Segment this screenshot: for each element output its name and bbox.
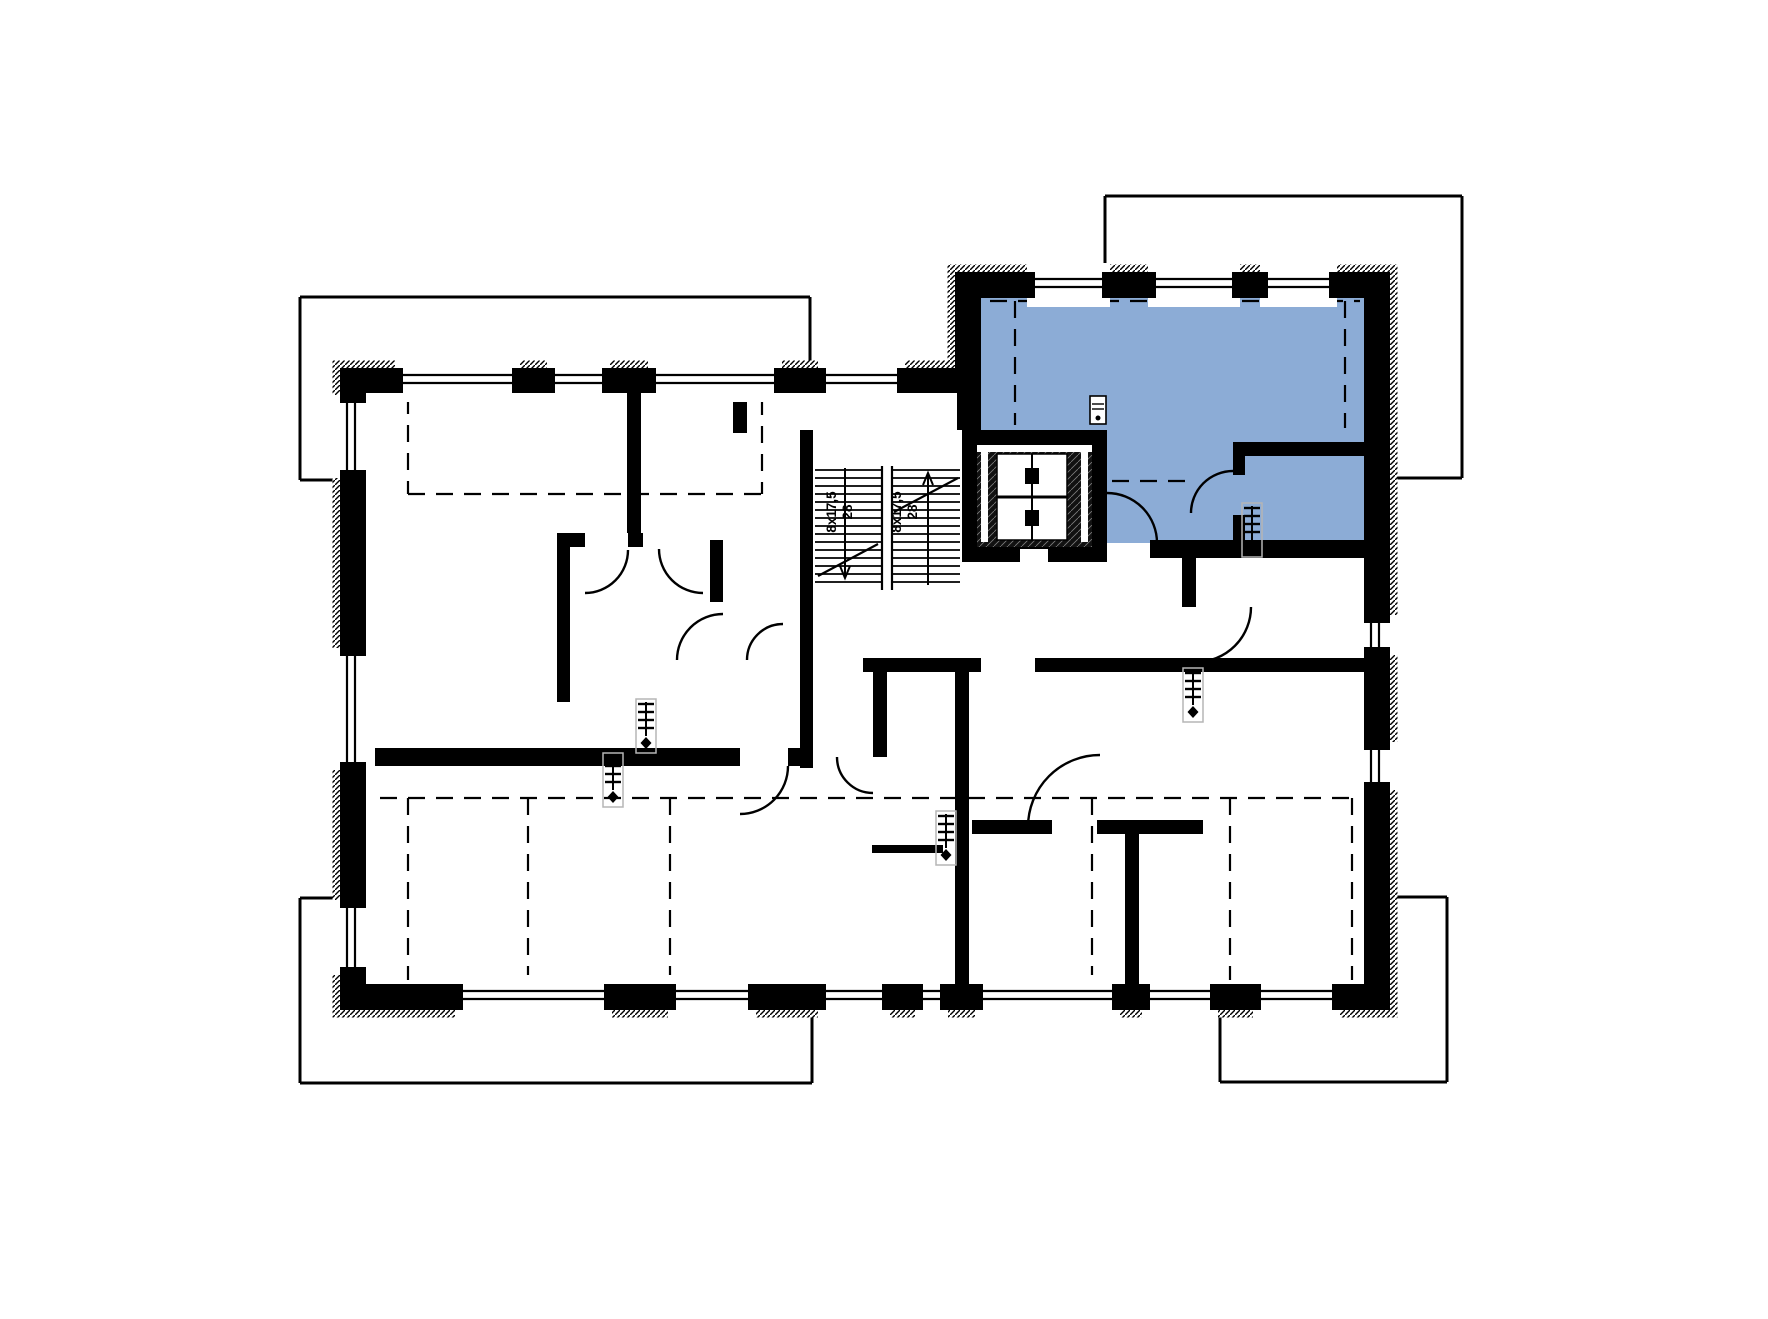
window-jamb bbox=[340, 648, 366, 656]
window-jamb bbox=[1232, 272, 1240, 298]
window bbox=[975, 975, 1120, 1019]
window-jamb bbox=[940, 984, 948, 1010]
window-jamb bbox=[1364, 782, 1390, 790]
window bbox=[1355, 615, 1399, 655]
window bbox=[455, 975, 612, 1019]
interior-wall bbox=[1233, 456, 1245, 475]
interior-wall bbox=[1182, 558, 1196, 607]
window-jamb bbox=[748, 984, 756, 1010]
window bbox=[1355, 742, 1399, 790]
window-jamb bbox=[340, 967, 366, 975]
interior-wall bbox=[1035, 658, 1364, 672]
interior-wall bbox=[873, 672, 887, 757]
window-jamb bbox=[818, 984, 826, 1010]
window-jamb bbox=[602, 368, 610, 393]
window bbox=[818, 975, 890, 1019]
window-jamb bbox=[547, 368, 555, 393]
elevator-door-opening bbox=[1020, 549, 1048, 563]
window bbox=[818, 359, 905, 402]
window bbox=[1027, 263, 1110, 307]
window bbox=[668, 975, 756, 1019]
window-jamb bbox=[1148, 272, 1156, 298]
window-jamb bbox=[340, 762, 366, 770]
window-jamb bbox=[1260, 272, 1268, 298]
window-jamb bbox=[774, 368, 782, 393]
interior-wall bbox=[557, 533, 585, 547]
window-jamb bbox=[668, 984, 676, 1010]
window-jamb bbox=[340, 470, 366, 478]
window-jamb bbox=[882, 984, 890, 1010]
interior-wall bbox=[627, 393, 641, 533]
interior-wall bbox=[863, 658, 981, 672]
window-jamb bbox=[1102, 272, 1110, 298]
stair-label-tread: 28 bbox=[905, 504, 920, 520]
floor-plan-page: 8x17,5288x17,528 bbox=[0, 0, 1768, 1319]
interior-wall bbox=[955, 672, 969, 984]
window-jamb bbox=[1364, 647, 1390, 655]
window-jamb bbox=[1253, 984, 1261, 1010]
interior-wall bbox=[1150, 540, 1364, 558]
window-jamb bbox=[818, 368, 826, 393]
window bbox=[331, 900, 375, 975]
window-jamb bbox=[1332, 984, 1340, 1010]
window bbox=[648, 359, 782, 402]
window bbox=[1142, 975, 1218, 1019]
window-jamb bbox=[395, 368, 403, 393]
window-jamb bbox=[1027, 272, 1035, 298]
electrical-panel-icon bbox=[1090, 396, 1106, 424]
window-jamb bbox=[455, 984, 463, 1010]
window bbox=[1253, 975, 1340, 1019]
stair-label-riser: 8x17,5 bbox=[824, 491, 839, 533]
window-jamb bbox=[1364, 742, 1390, 750]
interior-wall bbox=[1233, 515, 1245, 543]
window bbox=[395, 359, 520, 402]
stair-label-tread: 28 bbox=[840, 504, 855, 520]
interior-wall bbox=[972, 820, 1052, 834]
window-jamb bbox=[648, 368, 656, 393]
window-jamb bbox=[1112, 984, 1120, 1010]
interior-wall bbox=[800, 430, 813, 768]
window bbox=[331, 395, 375, 478]
window bbox=[547, 359, 610, 402]
window-jamb bbox=[897, 368, 905, 393]
window-jamb bbox=[512, 368, 520, 393]
window bbox=[1260, 263, 1337, 307]
window bbox=[1148, 263, 1240, 307]
interior-wall bbox=[1233, 442, 1364, 456]
interior-wall bbox=[788, 748, 813, 766]
interior-wall bbox=[366, 748, 740, 766]
stair-label-riser: 8x17,5 bbox=[889, 491, 904, 533]
window-jamb bbox=[1364, 615, 1390, 623]
floor-plan-drawing: 8x17,5288x17,528 bbox=[0, 0, 1768, 1319]
interior-wall bbox=[557, 547, 570, 702]
interior-wall bbox=[1125, 834, 1139, 984]
window bbox=[915, 975, 948, 1019]
elevator bbox=[962, 430, 1107, 563]
interior-wall bbox=[1097, 820, 1203, 834]
window-jamb bbox=[975, 984, 983, 1010]
interior-wall bbox=[710, 540, 723, 602]
window-jamb bbox=[604, 984, 612, 1010]
interior-wall bbox=[628, 533, 643, 547]
window bbox=[331, 648, 375, 770]
window-jamb bbox=[340, 900, 366, 908]
window-jamb bbox=[915, 984, 923, 1010]
interior-wall bbox=[957, 393, 981, 430]
interior-wall bbox=[872, 845, 943, 853]
window-jamb bbox=[1142, 984, 1150, 1010]
window-jamb bbox=[1210, 984, 1218, 1010]
window-jamb bbox=[1329, 272, 1337, 298]
window-jamb bbox=[340, 395, 366, 403]
